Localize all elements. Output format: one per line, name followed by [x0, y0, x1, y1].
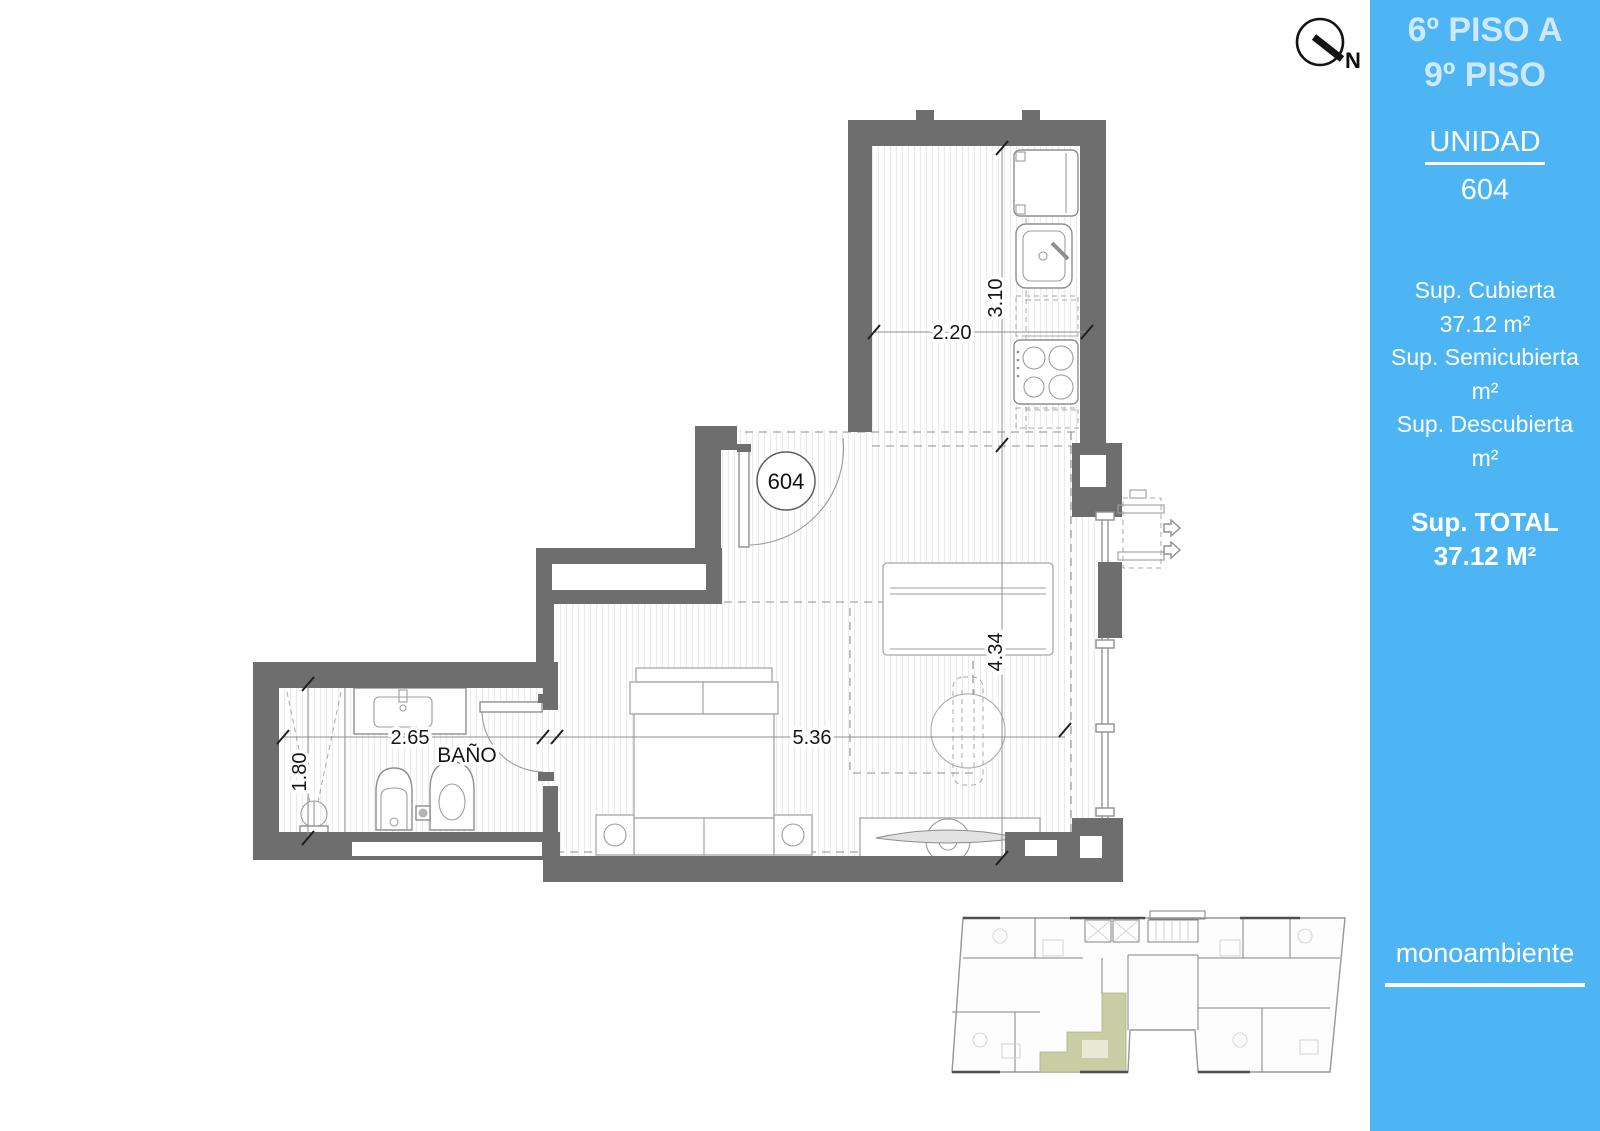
surface-areas: Sup. Cubierta 37.12 m² Sup. Semicubierta… [1370, 274, 1600, 475]
refrigerator [1014, 150, 1078, 216]
dim-living-width: 5.36 [793, 727, 832, 749]
sofa [883, 563, 1053, 655]
surface-total: Sup. TOTAL 37.12 M² [1370, 505, 1600, 573]
total-label: Sup. TOTAL [1370, 505, 1600, 539]
floor-plan-canvas: 2.20 3.10 4.34 5.36 2.65 1.80 BAÑO 604 N [0, 0, 1370, 1131]
floor-range: 6º PISO A 9º PISO [1370, 8, 1600, 98]
unit-number: 604 [1370, 174, 1600, 207]
page: 2.20 3.10 4.34 5.36 2.65 1.80 BAÑO 604 N [0, 0, 1600, 1131]
floor-range-line1: 6º PISO A [1370, 8, 1600, 53]
unit-label-text: UNIDAD [1425, 126, 1544, 165]
toilet [430, 762, 474, 830]
area-value: m² [1370, 375, 1600, 409]
floor-drain [416, 806, 430, 820]
key-plan [952, 911, 1345, 1072]
sidebar: 6º PISO A 9º PISO UNIDAD 604 Sup. Cubier… [1370, 0, 1600, 1131]
bathroom-label: BAÑO [437, 743, 497, 767]
floor-range-line2: 9º PISO [1370, 53, 1600, 98]
dim-bath-depth: 1.80 [289, 753, 311, 792]
unit-type-label: monoambiente [1385, 938, 1585, 987]
dim-kitchen-depth: 3.10 [985, 279, 1007, 318]
area-label: Sup. Cubierta [1370, 274, 1600, 308]
dim-kitchen-width: 2.20 [933, 322, 972, 344]
dim-bath-width: 2.65 [391, 727, 430, 749]
unit-badge-number: 604 [768, 469, 805, 494]
ac-unit [1118, 490, 1180, 568]
area-value: m² [1370, 442, 1600, 476]
compass-north-label: N [1345, 48, 1361, 73]
bidet [376, 768, 412, 830]
area-value: 37.12 m² [1370, 308, 1600, 342]
kitchen-sink [1016, 224, 1072, 288]
airflow-arrow [1164, 520, 1180, 536]
area-label: Sup. Semicubierta [1370, 341, 1600, 375]
airflow-arrow [1164, 542, 1180, 558]
stove [1014, 340, 1078, 404]
area-label: Sup. Descubierta [1370, 408, 1600, 442]
north-compass: N [1297, 19, 1361, 73]
dim-living-depth: 4.34 [985, 633, 1007, 672]
unit-label: UNIDAD [1370, 126, 1600, 165]
total-value: 37.12 M² [1370, 539, 1600, 573]
unit-badge: 604 [757, 452, 815, 510]
